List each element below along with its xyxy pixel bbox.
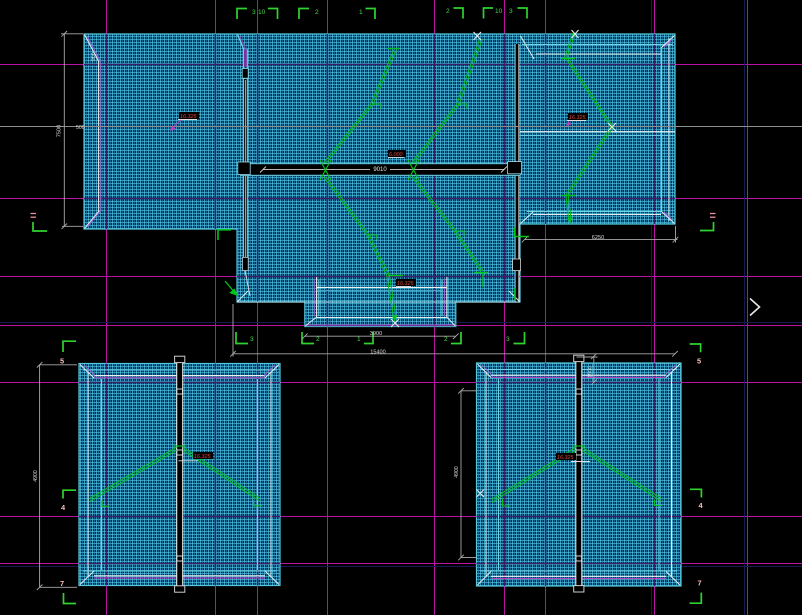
svg-text:3: 3	[250, 336, 254, 343]
svg-text:4900: 4900	[33, 470, 39, 482]
svg-text:7500: 7500	[57, 125, 63, 137]
svg-text:15400: 15400	[370, 349, 386, 355]
svg-text:6250: 6250	[592, 235, 604, 241]
svg-text:2: 2	[444, 336, 448, 343]
svg-text:1500: 1500	[588, 366, 594, 377]
svg-text:16.325: 16.325	[557, 455, 574, 461]
svg-text:5: 5	[697, 357, 701, 366]
svg-text:7: 7	[60, 579, 64, 588]
svg-text:2: 2	[446, 8, 450, 15]
svg-text:10: 10	[495, 8, 503, 15]
svg-text:1: 1	[357, 336, 361, 343]
svg-text:2: 2	[316, 336, 320, 343]
svg-text:3: 3	[252, 9, 256, 16]
svg-text:3900: 3900	[370, 331, 382, 337]
svg-text:10: 10	[258, 9, 266, 16]
svg-text:9010: 9010	[373, 167, 387, 173]
svg-text:900: 900	[91, 52, 97, 61]
svg-text:7: 7	[698, 579, 702, 588]
svg-text:4900: 4900	[454, 466, 460, 478]
svg-text:1: 1	[359, 9, 363, 16]
svg-text:500: 500	[76, 125, 85, 131]
svg-text:2: 2	[315, 9, 319, 16]
svg-text:3: 3	[509, 8, 513, 15]
svg-text:5: 5	[60, 357, 64, 366]
svg-text:16.325: 16.325	[194, 454, 211, 460]
svg-text:3: 3	[506, 336, 510, 343]
